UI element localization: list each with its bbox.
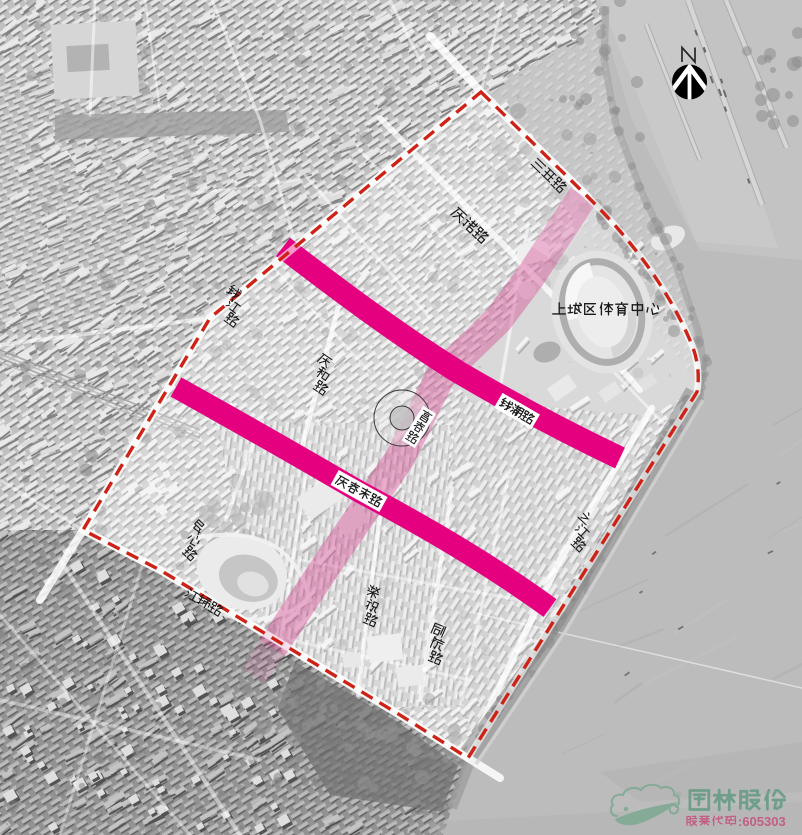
svg-text:®: ® — [676, 791, 682, 799]
svg-text::605303: :605303 — [738, 814, 786, 829]
